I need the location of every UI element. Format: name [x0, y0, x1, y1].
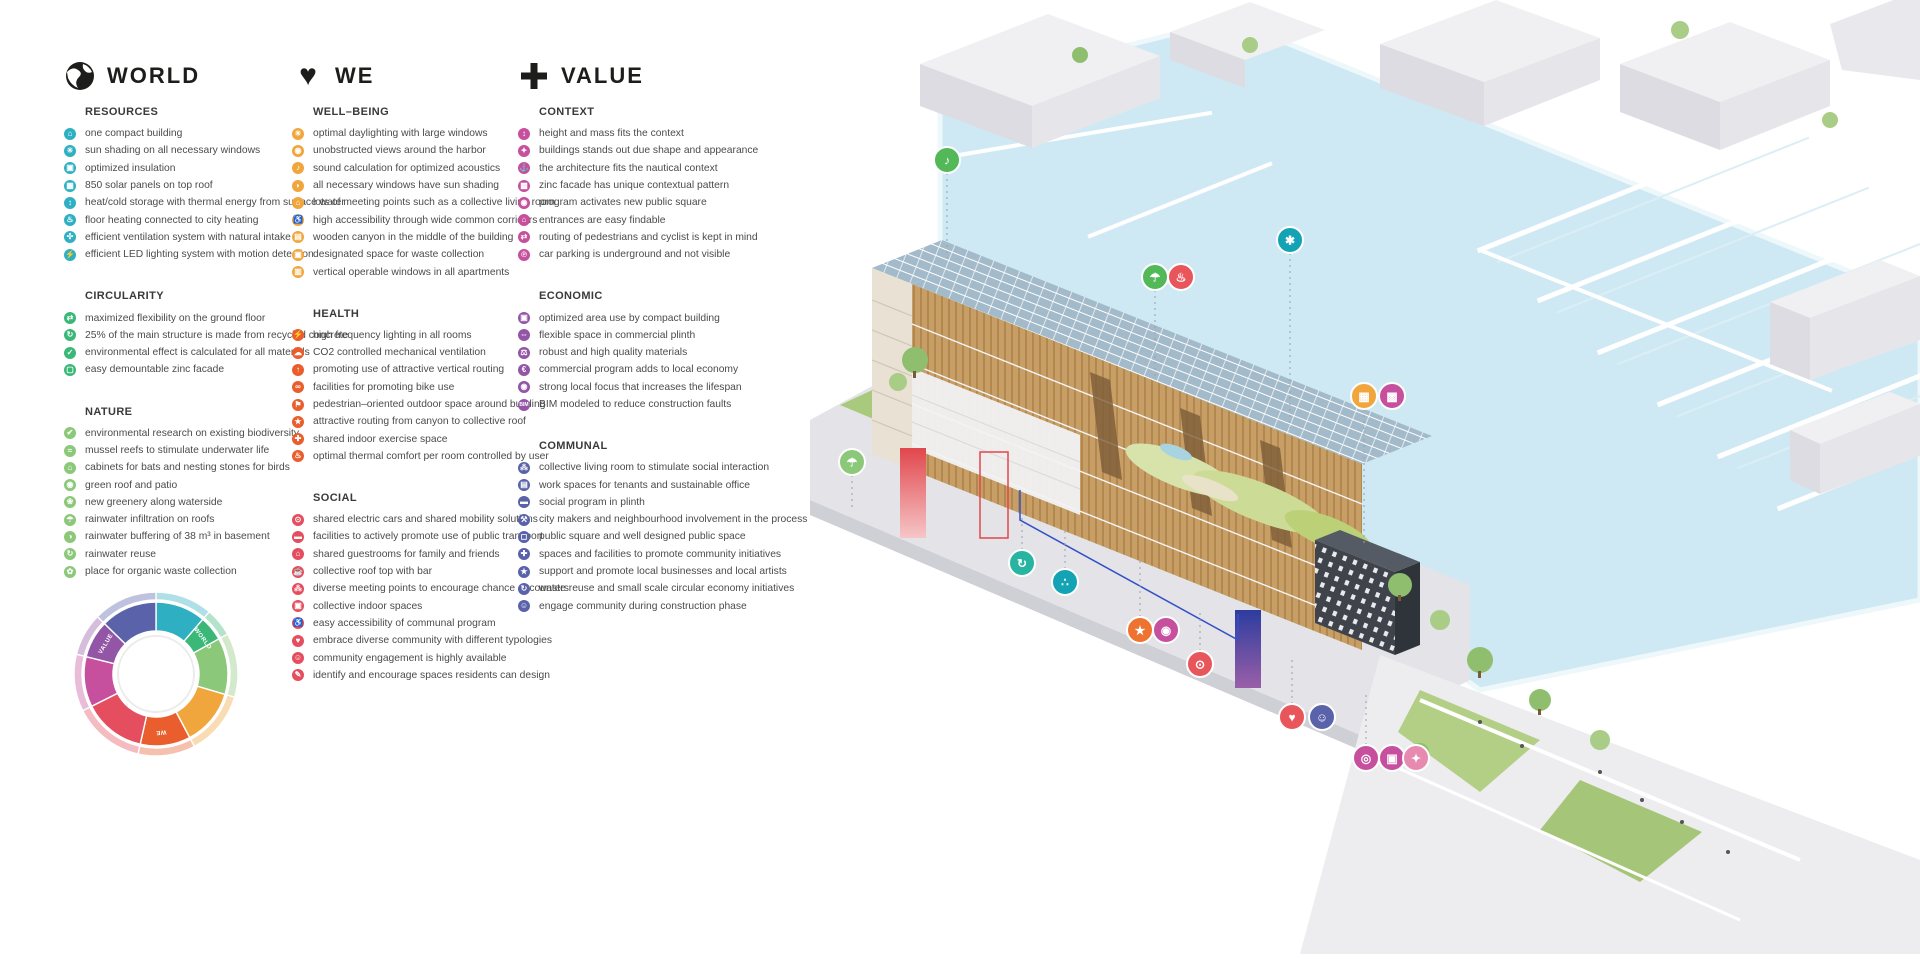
- item-icon: ↻: [518, 583, 530, 595]
- heart-icon: ♥: [292, 60, 324, 92]
- item-label: robust and high quality materials: [539, 347, 687, 358]
- item-icon: ⊙: [292, 514, 304, 526]
- item-label: easy demountable zinc facade: [85, 364, 224, 375]
- list-item: ♪sound calculation for optimized acousti…: [292, 160, 524, 177]
- building-illustration: ♪✱☂♨▦▩☂↻∴★◉⊙♥☺◎▣✦: [780, 0, 1920, 954]
- item-icon: ⌂: [518, 214, 530, 226]
- item-label: rainwater reuse: [85, 549, 156, 560]
- list-item: ⊙shared electric cars and shared mobilit…: [292, 511, 524, 528]
- item-label: green roof and patio: [85, 480, 177, 491]
- list-item: ↻25% of the main structure is made from …: [64, 327, 292, 344]
- item-icon: ▩: [518, 180, 530, 192]
- pattern-icon: ▩: [1379, 383, 1405, 409]
- list-item: ◗all necessary windows have sun shading: [292, 177, 524, 194]
- section-nature: NATURE✔environmental research on existin…: [64, 406, 292, 581]
- list-item: ↕heat/cold storage with thermal energy f…: [64, 194, 292, 211]
- list-item: ♿easy accessibility of communal program: [292, 615, 524, 632]
- item-label: floor heating connected to city heating: [85, 215, 258, 226]
- item-label: shared electric cars and shared mobility…: [313, 514, 538, 525]
- section-title: NATURE: [85, 406, 292, 418]
- list-item: ☕collective roof top with bar: [292, 563, 524, 580]
- list-item: ℗car parking is underground and not visi…: [518, 246, 764, 263]
- list-item: ▬facilities to actively promote use of p…: [292, 528, 524, 545]
- item-label: optimized insulation: [85, 163, 175, 174]
- item-icon: ⌂: [292, 197, 304, 209]
- list-item: ✚spaces and facilities to promote commun…: [518, 546, 764, 563]
- item-label: entrances are easy findable: [539, 215, 666, 226]
- people-icon: ☺: [1309, 704, 1335, 730]
- item-label: pedestrian–oriented outdoor space around…: [313, 399, 545, 410]
- list-item: ▣optimized insulation: [64, 160, 292, 177]
- list-item: BIMBIM modeled to reduce construction fa…: [518, 396, 764, 413]
- list-item: ♨optimal thermal comfort per room contro…: [292, 448, 524, 465]
- item-icon: ⁂: [518, 462, 530, 474]
- list-item: ⚖robust and high quality materials: [518, 344, 764, 361]
- item-icon: ♪: [292, 162, 304, 174]
- item-icon: ♿: [292, 214, 304, 226]
- item-icon: ⌂: [64, 128, 76, 140]
- list-item: ↻waste reuse and small scale circular ec…: [518, 580, 764, 597]
- column-value-label: VALUE: [561, 63, 644, 89]
- section-title: CONTEXT: [539, 106, 764, 118]
- item-icon: ✔: [64, 427, 76, 439]
- item-icon: ≈: [64, 445, 76, 457]
- item-icon: ⚡: [64, 249, 76, 261]
- item-icon: ⚡: [292, 329, 304, 341]
- item-label: unobstructed views around the harbor: [313, 145, 486, 156]
- svg-text:☺: ☺: [1316, 711, 1328, 725]
- item-icon: ⚓: [518, 162, 530, 174]
- list-item: ◉green roof and patio: [64, 476, 292, 493]
- section-social: SOCIAL⊙shared electric cars and shared m…: [292, 492, 524, 684]
- list-item: ⚑pedestrian–oriented outdoor space aroun…: [292, 396, 524, 413]
- bird-icon: ♪: [934, 147, 960, 173]
- section-context: CONTEXT↕height and mass fits the context…: [518, 106, 764, 263]
- item-label: mussel reefs to stimulate underwater lif…: [85, 445, 269, 456]
- svg-text:▦: ▦: [1358, 390, 1369, 404]
- list-item: ★attractive routing from canyon to colle…: [292, 413, 524, 430]
- recycle-icon: ↻: [1009, 550, 1035, 576]
- item-icon: ▣: [518, 312, 530, 324]
- item-icon: BIM: [518, 399, 530, 411]
- section-resources: RESOURCES⌂one compact building☀sun shadi…: [64, 106, 292, 263]
- item-label: buildings stands out due shape and appea…: [539, 145, 758, 156]
- list-item: ⌂shared guestrooms for family and friend…: [292, 546, 524, 563]
- item-label: identify and encourage spaces residents …: [313, 670, 550, 681]
- list-item: ▣optimized area use by compact building: [518, 309, 764, 326]
- svg-text:⊙: ⊙: [1195, 658, 1205, 672]
- list-item: ☂rainwater infiltration on roofs: [64, 511, 292, 528]
- item-icon: ♿: [292, 617, 304, 629]
- item-label: spaces and facilities to promote communi…: [539, 549, 781, 560]
- item-icon: ▬: [518, 496, 530, 508]
- item-label: flexible space in commercial plinth: [539, 330, 695, 341]
- list-item: ⚡efficient LED lighting system with moti…: [64, 246, 292, 263]
- svg-text:∴: ∴: [1061, 576, 1069, 590]
- item-icon: ⁂: [292, 583, 304, 595]
- item-label: rainwater buffering of 38 m³ in basement: [85, 531, 270, 542]
- item-label: collective roof top with bar: [313, 566, 432, 577]
- list-item: ✣efficient ventilation system with natur…: [64, 229, 292, 246]
- item-icon: ⇄: [64, 312, 76, 324]
- section-title: CIRCULARITY: [85, 290, 292, 302]
- item-label: all necessary windows have sun shading: [313, 180, 499, 191]
- list-item: ◉unobstructed views around the harbor: [292, 142, 524, 159]
- item-label: strong local focus that increases the li…: [539, 382, 742, 393]
- list-item: ▤wooden canyon in the middle of the buil…: [292, 229, 524, 246]
- list-item: ⇔flexible space in commercial plinth: [518, 327, 764, 344]
- item-label: waste reuse and small scale circular eco…: [539, 583, 794, 594]
- item-label: program activates new public square: [539, 197, 707, 208]
- svg-text:◎: ◎: [1361, 752, 1372, 766]
- shower-icon: ☂: [1142, 264, 1168, 290]
- column-world-label: WORLD: [107, 63, 200, 89]
- item-label: height and mass fits the context: [539, 128, 684, 139]
- list-item: ▩zinc facade has unique contextual patte…: [518, 177, 764, 194]
- item-icon: ☕: [292, 566, 304, 578]
- item-label: efficient LED lighting system with motio…: [85, 249, 314, 260]
- item-icon: ◗: [292, 180, 304, 192]
- section-title: HEALTH: [313, 308, 524, 320]
- list-item: ☀optimal daylighting with large windows: [292, 125, 524, 142]
- item-icon: ✚: [518, 548, 530, 560]
- list-item: ⌂entrances are easy findable: [518, 211, 764, 228]
- item-label: optimal thermal comfort per room control…: [313, 451, 549, 462]
- list-item: ▤work spaces for tenants and sustainable…: [518, 476, 764, 493]
- plaza: [1300, 655, 1920, 954]
- section-title: COMMUNAL: [539, 440, 764, 452]
- item-icon: ☂: [64, 514, 76, 526]
- item-icon: ◻: [518, 531, 530, 543]
- list-item: ∞facilities for promoting bike use: [292, 379, 524, 396]
- star-icon: ★: [1127, 617, 1153, 643]
- item-icon: ⚖: [518, 347, 530, 359]
- item-icon: ▦: [64, 180, 76, 192]
- list-item: ★support and promote local businesses an…: [518, 563, 764, 580]
- list-item: ⇄routing of pedestrians and cyclist is k…: [518, 229, 764, 246]
- item-icon: ❀: [64, 496, 76, 508]
- list-item: ◉program activates new public square: [518, 194, 764, 211]
- list-item: ▣collective indoor spaces: [292, 598, 524, 615]
- item-icon: ⚑: [292, 399, 304, 411]
- walk-icon: ✦: [1403, 745, 1429, 771]
- section-economic: ECONOMIC▣optimized area use by compact b…: [518, 290, 764, 413]
- item-icon: ⇄: [518, 231, 530, 243]
- list-item: ↕height and mass fits the context: [518, 125, 764, 142]
- item-icon: ✿: [64, 566, 76, 578]
- item-icon: ↻: [64, 548, 76, 560]
- item-label: public square and well designed public s…: [539, 531, 746, 542]
- item-icon: ♨: [292, 450, 304, 462]
- item-icon: ⌂: [64, 462, 76, 474]
- list-item: ◉strong local focus that increases the l…: [518, 379, 764, 396]
- item-icon: ◉: [292, 145, 304, 157]
- item-icon: €: [518, 364, 530, 376]
- item-icon: ⇔: [518, 329, 530, 341]
- item-label: optimal daylighting with large windows: [313, 128, 488, 139]
- item-label: maximized flexibility on the ground floo…: [85, 313, 265, 324]
- list-item: ⌂lots of meeting points such as a collec…: [292, 194, 524, 211]
- section-title: SOCIAL: [313, 492, 524, 504]
- list-item: ☺community engagement is highly availabl…: [292, 649, 524, 666]
- item-label: place for organic waste collection: [85, 566, 237, 577]
- item-label: easy accessibility of communal program: [313, 618, 496, 629]
- item-icon: ◑: [64, 531, 76, 543]
- window-icon: ▦: [1351, 383, 1377, 409]
- item-icon: ⌂: [292, 548, 304, 560]
- item-label: 850 solar panels on top roof: [85, 180, 213, 191]
- item-icon: ☺: [518, 600, 530, 612]
- section-title: WELL–BEING: [313, 106, 524, 118]
- svg-text:☂: ☂: [847, 456, 858, 470]
- item-label: wooden canyon in the middle of the build…: [313, 232, 513, 243]
- item-icon: ▤: [292, 231, 304, 243]
- item-label: city makers and neighbourhood involvemen…: [539, 514, 807, 525]
- list-item: ✎identify and encourage spaces residents…: [292, 667, 524, 684]
- list-item: ❀new greenery along waterside: [64, 494, 292, 511]
- list-item: ✔environmental research on existing biod…: [64, 425, 292, 442]
- column-value: VALUE CONTEXT↕height and mass fits the c…: [518, 58, 764, 615]
- category-wheel: WORLDWEVALUE: [72, 590, 240, 758]
- list-item: ✦buildings stands out due shape and appe…: [518, 142, 764, 159]
- section-communal: COMMUNAL⁂collective living room to stimu…: [518, 440, 764, 615]
- list-item: ⁂diverse meeting points to encourage cha…: [292, 580, 524, 597]
- item-icon: ▥: [292, 266, 304, 278]
- item-label: facilities for promoting bike use: [313, 382, 454, 393]
- item-icon: ↕: [518, 128, 530, 140]
- wheel-inner-ring: [118, 636, 194, 712]
- plus-icon: [518, 60, 550, 92]
- item-icon: ✚: [292, 433, 304, 445]
- column-world-title: WORLD: [64, 58, 292, 94]
- section-circularity: CIRCULARITY⇄maximized flexibility on the…: [64, 290, 292, 378]
- svg-text:✦: ✦: [1411, 752, 1421, 766]
- list-item: ▥vertical operable windows in all apartm…: [292, 263, 524, 280]
- item-label: high accessibility through wide common c…: [313, 215, 537, 226]
- item-label: embrace diverse community with different…: [313, 635, 552, 646]
- list-item: ▢easy demountable zinc facade: [64, 361, 292, 378]
- list-item: ✿place for organic waste collection: [64, 563, 292, 580]
- item-icon: ∞: [292, 381, 304, 393]
- section-well-being: WELL–BEING☀optimal daylighting with larg…: [292, 106, 524, 281]
- rain-icon: ☂: [839, 449, 865, 475]
- list-item: ◑rainwater buffering of 38 m³ in basemen…: [64, 528, 292, 545]
- item-icon: ★: [518, 566, 530, 578]
- svg-text:☂: ☂: [1150, 271, 1161, 285]
- list-item: ⚓the architecture fits the nautical cont…: [518, 160, 764, 177]
- item-label: engage community during construction pha…: [539, 601, 747, 612]
- column-value-title: VALUE: [518, 58, 764, 94]
- drops-icon: ∴: [1052, 569, 1078, 595]
- item-label: cabinets for bats and nesting stones for…: [85, 462, 290, 473]
- item-label: community engagement is highly available: [313, 653, 506, 664]
- item-label: collective indoor spaces: [313, 601, 422, 612]
- item-label: shared guestrooms for family and friends: [313, 549, 500, 560]
- column-world: WORLD RESOURCES⌂one compact building☀sun…: [64, 58, 292, 580]
- car-icon: ⊙: [1187, 651, 1213, 677]
- item-label: car parking is underground and not visib…: [539, 249, 730, 260]
- wand-icon: ✱: [1277, 227, 1303, 253]
- list-item: ▬social program in plinth: [518, 494, 764, 511]
- indigo-gradient-bar: [1235, 610, 1261, 688]
- item-label: new greenery along waterside: [85, 497, 222, 508]
- item-icon: ↑: [292, 364, 304, 376]
- column-we-title: ♥ WE: [292, 58, 524, 94]
- item-label: efficient ventilation system with natura…: [85, 232, 291, 243]
- list-item: ♿high accessibility through wide common …: [292, 211, 524, 228]
- item-icon: ▣: [292, 249, 304, 261]
- item-label: zinc facade has unique contextual patter…: [539, 180, 729, 191]
- item-label: optimized area use by compact building: [539, 313, 720, 324]
- list-item: ▦850 solar panels on top roof: [64, 177, 292, 194]
- heart-icon: ♥: [1279, 704, 1305, 730]
- list-item: ⁂collective living room to stimulate soc…: [518, 459, 764, 476]
- item-icon: ◉: [518, 381, 530, 393]
- gift-icon: ▣: [1379, 745, 1405, 771]
- item-label: BIM modeled to reduce construction fault…: [539, 399, 731, 410]
- item-icon: ☀: [292, 128, 304, 140]
- item-icon: ✣: [64, 231, 76, 243]
- list-item: ☁CO2 controlled mechanical ventilation: [292, 344, 524, 361]
- section-health: HEALTH⚡high frequency lighting in all ro…: [292, 308, 524, 465]
- item-label: collective living room to stimulate soci…: [539, 462, 769, 473]
- svg-text:♥: ♥: [1288, 711, 1295, 725]
- list-item: ⇄maximized flexibility on the ground flo…: [64, 309, 292, 326]
- item-label: sound calculation for optimized acoustic…: [313, 163, 500, 174]
- item-icon: ▬: [292, 531, 304, 543]
- globe-icon: [64, 60, 96, 92]
- item-label: environmental research on existing biodi…: [85, 428, 299, 439]
- svg-text:▩: ▩: [1386, 390, 1397, 404]
- section-title: ECONOMIC: [539, 290, 764, 302]
- list-item: ⌂cabinets for bats and nesting stones fo…: [64, 459, 292, 476]
- item-label: attractive routing from canyon to collec…: [313, 416, 526, 427]
- item-icon: ✎: [292, 669, 304, 681]
- section-title: RESOURCES: [85, 106, 292, 118]
- svg-text:♪: ♪: [944, 154, 950, 168]
- item-icon: ▤: [518, 479, 530, 491]
- list-item: ⌂one compact building: [64, 125, 292, 142]
- list-item: ♨floor heating connected to city heating: [64, 211, 292, 228]
- pin-icon: ◎: [1353, 745, 1379, 771]
- item-label: commercial program adds to local economy: [539, 364, 738, 375]
- column-we: ♥ WE WELL–BEING☀optimal daylighting with…: [292, 58, 524, 684]
- list-item: ✓environmental effect is calculated for …: [64, 344, 292, 361]
- item-icon: ↻: [64, 329, 76, 341]
- svg-text:✱: ✱: [1285, 234, 1295, 248]
- list-item: ✚shared indoor exercise space: [292, 430, 524, 447]
- item-icon: ✓: [64, 347, 76, 359]
- item-label: work spaces for tenants and sustainable …: [539, 480, 750, 491]
- item-label: shared indoor exercise space: [313, 434, 448, 445]
- item-label: environmental effect is calculated for a…: [85, 347, 310, 358]
- svg-text:◉: ◉: [1161, 624, 1172, 638]
- item-label: rainwater infiltration on roofs: [85, 514, 214, 525]
- item-icon: ♥: [292, 635, 304, 647]
- item-label: promoting use of attractive vertical rou…: [313, 364, 504, 375]
- item-label: sun shading on all necessary windows: [85, 145, 260, 156]
- item-icon: ✦: [518, 145, 530, 157]
- item-label: vertical operable windows in all apartme…: [313, 267, 509, 278]
- item-icon: ▣: [292, 600, 304, 612]
- map-icon: ◉: [1153, 617, 1179, 643]
- item-icon: ☺: [292, 652, 304, 664]
- red-gradient-bar: [900, 448, 926, 538]
- list-item: ↻rainwater reuse: [64, 546, 292, 563]
- list-item: ☀sun shading on all necessary windows: [64, 142, 292, 159]
- item-icon: ★: [292, 416, 304, 428]
- item-icon: ◉: [518, 197, 530, 209]
- list-item: ≈mussel reefs to stimulate underwater li…: [64, 442, 292, 459]
- item-icon: ▢: [64, 364, 76, 376]
- item-label: high frequency lighting in all rooms: [313, 330, 472, 341]
- svg-text:▣: ▣: [1386, 752, 1397, 766]
- svg-text:★: ★: [1135, 624, 1146, 638]
- list-item: ▣designated space for waste collection: [292, 246, 524, 263]
- item-icon: ◉: [64, 479, 76, 491]
- list-item: ⚒city makers and neighbourhood involveme…: [518, 511, 764, 528]
- list-item: ♥embrace diverse community with differen…: [292, 632, 524, 649]
- list-item: ↑promoting use of attractive vertical ro…: [292, 361, 524, 378]
- svg-text:♨: ♨: [1176, 271, 1187, 285]
- item-icon: ♨: [64, 214, 76, 226]
- item-label: routing of pedestrians and cyclist is ke…: [539, 232, 758, 243]
- item-label: designated space for waste collection: [313, 249, 484, 260]
- svg-text:↻: ↻: [1017, 557, 1027, 571]
- item-label: one compact building: [85, 128, 182, 139]
- item-icon: ⚒: [518, 514, 530, 526]
- list-item: €commercial program adds to local econom…: [518, 361, 764, 378]
- list-item: ⚡high frequency lighting in all rooms: [292, 327, 524, 344]
- item-icon: ↕: [64, 197, 76, 209]
- item-icon: ▣: [64, 162, 76, 174]
- item-icon: ☁: [292, 347, 304, 359]
- wheel-label: WE: [155, 728, 166, 735]
- item-label: facilities to actively promote use of pu…: [313, 531, 543, 542]
- item-icon: ☀: [64, 145, 76, 157]
- list-item: ◻public square and well designed public …: [518, 528, 764, 545]
- item-label: the architecture fits the nautical conte…: [539, 163, 718, 174]
- item-label: CO2 controlled mechanical ventilation: [313, 347, 486, 358]
- column-we-label: WE: [335, 63, 374, 89]
- item-label: social program in plinth: [539, 497, 645, 508]
- item-label: support and promote local businesses and…: [539, 566, 787, 577]
- item-icon: ℗: [518, 249, 530, 261]
- heat-icon: ♨: [1168, 264, 1194, 290]
- list-item: ☺engage community during construction ph…: [518, 598, 764, 615]
